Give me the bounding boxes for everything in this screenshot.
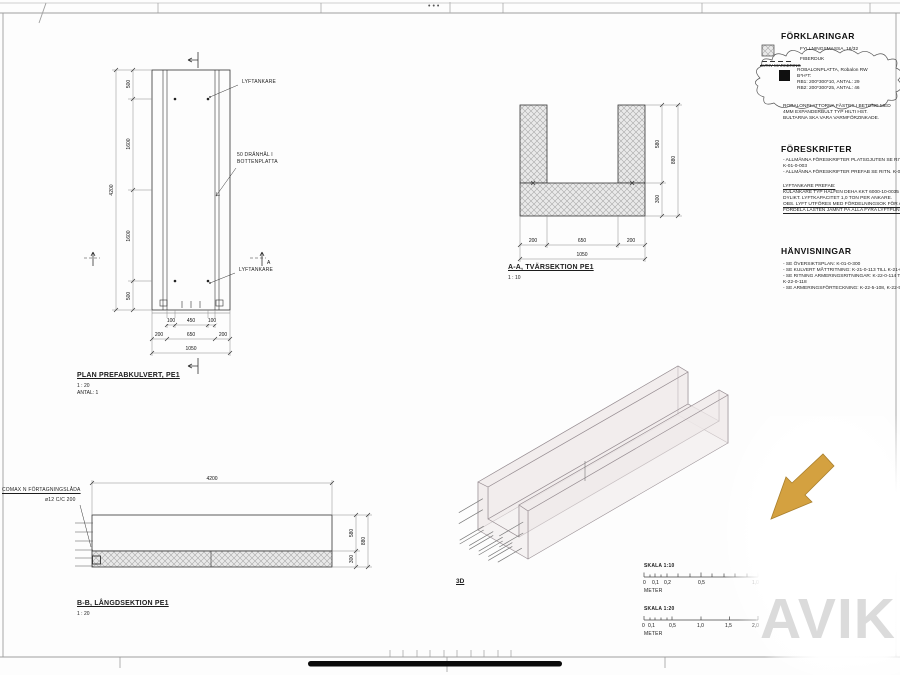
watermark-arrow-layer <box>0 0 900 675</box>
gold-arrow-icon <box>771 454 834 519</box>
watermark-text: AVIK <box>760 586 896 652</box>
drawing-sheet: ••• FÖRKLARINGAR FYLLNINGSMASSA, 16/32 F… <box>0 0 900 675</box>
